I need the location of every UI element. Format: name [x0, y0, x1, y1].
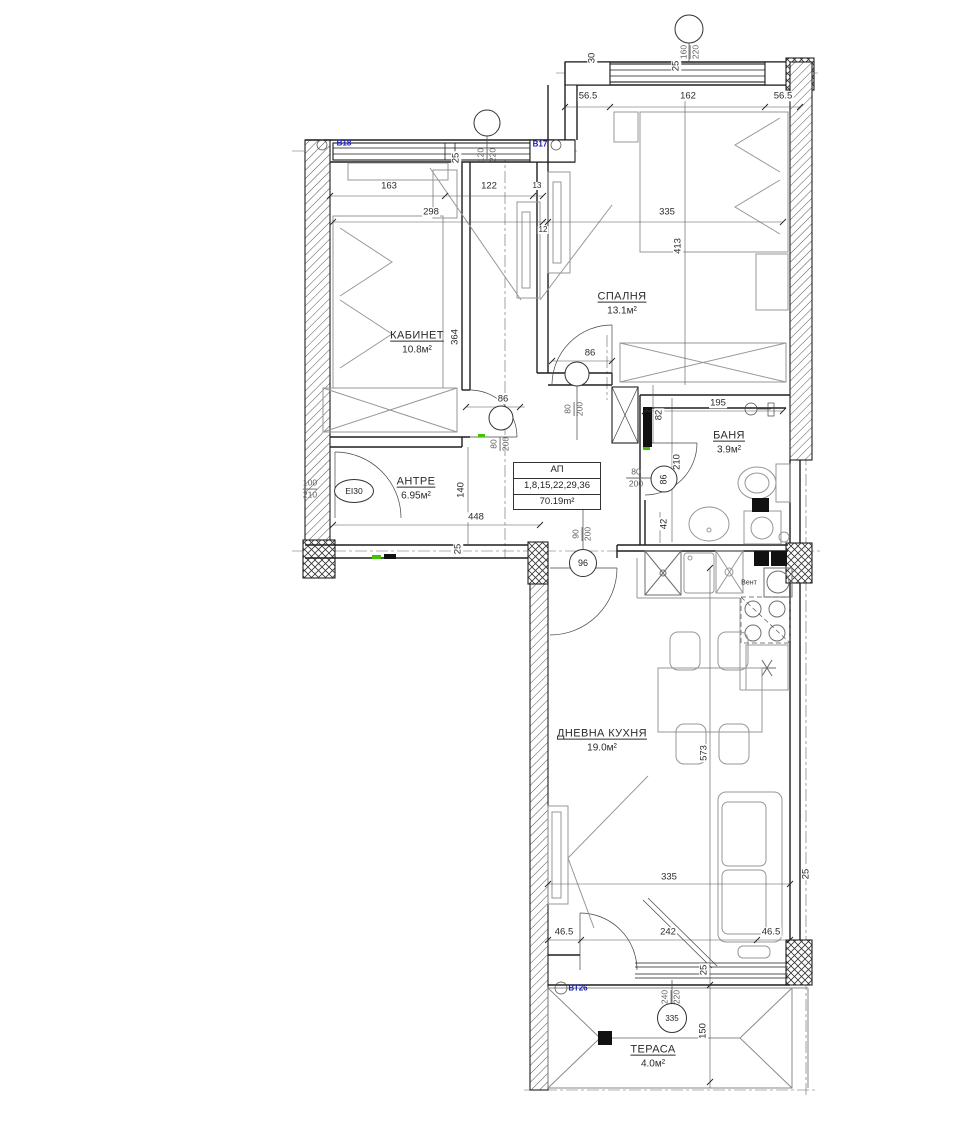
dim: 30	[587, 52, 597, 65]
window-label-vt26: ВТ26	[568, 984, 587, 993]
dim: 210	[672, 453, 682, 471]
dim: 56.5	[773, 91, 794, 101]
bath-wall-fixture	[745, 403, 757, 415]
floor-plan-drawing	[0, 0, 975, 1125]
chair	[719, 724, 749, 764]
door-marker-office	[489, 406, 514, 431]
hob-right	[771, 551, 787, 566]
door-size-entry: 100210	[303, 479, 317, 500]
dim: 195	[709, 398, 727, 408]
dresser	[756, 254, 788, 310]
dim: 298	[422, 207, 440, 217]
apartment-area: 70.19m²	[514, 495, 600, 510]
fire-rating-badge: EI30	[334, 479, 374, 503]
sofa	[718, 792, 782, 942]
terrace-window	[548, 955, 790, 985]
dim: 150	[698, 1022, 708, 1040]
wall-right	[790, 62, 812, 460]
nightstand	[614, 112, 638, 142]
room-label-bath: БАНЯ 3.9м²	[713, 430, 745, 457]
terrace-slider	[643, 900, 712, 968]
room-label-living: ДНЕВНА КУХНЯ 19.0м²	[557, 728, 647, 755]
dim: 335	[660, 872, 678, 882]
floor-plan: КАБИНЕТ 10.8м² СПАЛНЯ 13.1м² АНТРЕ 6.95м…	[0, 0, 975, 1125]
door-size-office: 80200	[490, 437, 511, 451]
apartment-units: 1,8,15,22,29,36	[514, 479, 600, 495]
door-marker-terrace: 335	[657, 1003, 687, 1033]
riser	[643, 407, 652, 447]
side-table	[738, 946, 770, 958]
room-label-hall: АНТРЕ 6.95м²	[397, 476, 436, 503]
room-label-office: КАБИНЕТ 10.8м²	[390, 330, 444, 357]
dim: 82	[654, 409, 664, 422]
dim: 25	[671, 60, 681, 73]
dim: 12	[538, 226, 549, 234]
dim: 86	[497, 394, 510, 404]
dim: 56.5	[578, 91, 599, 101]
bedroom-bed	[640, 112, 788, 252]
window-label-v17: В17	[533, 140, 548, 149]
toilet	[738, 467, 776, 499]
switch-mark	[372, 555, 381, 559]
window-size-bedroom: 160220	[680, 45, 701, 59]
dim: 448	[467, 512, 485, 522]
dim: 25	[801, 868, 811, 881]
apartment-title: АП	[514, 463, 600, 479]
living-door-arc	[550, 568, 617, 635]
column-bath-se	[786, 543, 812, 583]
room-label-terrace: ТЕРАСА 4.0м²	[630, 1044, 675, 1071]
valve	[752, 498, 769, 512]
bedroom-wardrobe	[548, 172, 570, 273]
apartment-info-box: АП 1,8,15,22,29,36 70.19m²	[513, 462, 601, 510]
window-label-v18: В18	[337, 139, 352, 148]
window-marker-office	[474, 110, 501, 137]
column-living-se	[786, 940, 812, 985]
washbasin	[689, 507, 729, 541]
dim: 162	[679, 91, 697, 101]
dim: 163	[380, 181, 398, 191]
column-antre	[528, 542, 548, 584]
dim: 13	[532, 182, 543, 190]
terrace-drain	[598, 1031, 612, 1045]
dim: 413	[673, 237, 683, 255]
dim: 25	[453, 543, 463, 556]
door-size-bath: 80200	[629, 468, 643, 489]
window-size-office: 120220	[477, 148, 498, 162]
vent-label: Вент	[741, 580, 757, 587]
chair	[718, 632, 748, 670]
terrace-door-arc	[580, 913, 637, 970]
door-marker-bath: 86	[651, 466, 678, 493]
door-size-bedroom: 80200	[564, 402, 585, 416]
window-office-band	[333, 143, 530, 160]
dim: 46.5	[554, 927, 575, 937]
dim: 573	[699, 744, 709, 762]
dim: 122	[480, 181, 498, 191]
dim: 46.5	[761, 927, 782, 937]
wall-living-left	[530, 545, 548, 1090]
door-marker-bedroom	[565, 362, 590, 387]
dim: 140	[456, 481, 466, 499]
door-size-terrace: 240220	[661, 990, 682, 1004]
chair	[670, 632, 700, 670]
dim: 86	[584, 348, 597, 358]
dim: 242	[659, 927, 677, 937]
dim: 364	[450, 328, 460, 346]
tv-cabinet	[548, 806, 568, 904]
window-bedroom-band	[610, 64, 765, 82]
toilet-tank	[776, 464, 790, 502]
dim: 42	[659, 518, 669, 531]
door-marker-living: 96	[569, 549, 597, 577]
dim: 335	[658, 207, 676, 217]
room-label-bedroom: СПАЛНЯ 13.1м²	[598, 291, 647, 318]
hob-left	[754, 551, 769, 566]
window-marker-bedroom	[675, 15, 704, 44]
dim: 25	[451, 152, 461, 165]
dim: 25	[699, 964, 709, 977]
door-size-living: 90200	[572, 527, 593, 541]
furniture-layer	[323, 112, 792, 958]
